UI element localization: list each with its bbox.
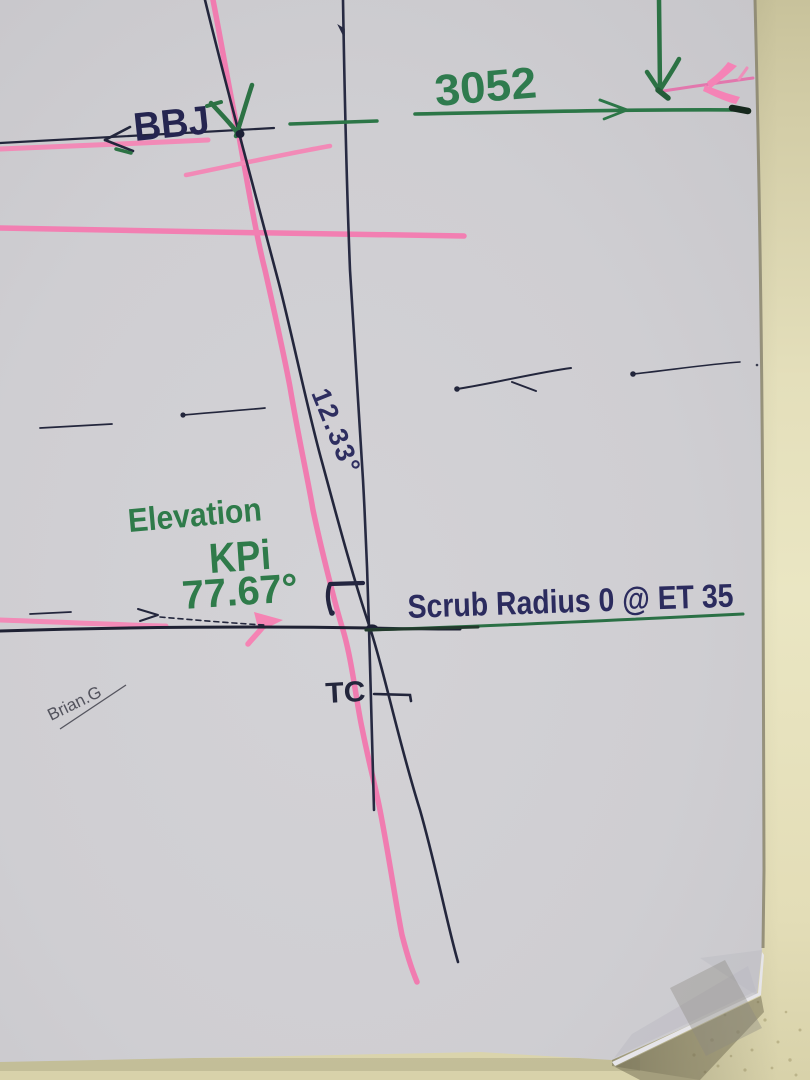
svg-text:3052: 3052 <box>433 58 539 116</box>
svg-text:BBJ: BBJ <box>131 98 211 150</box>
svg-text:77.67°: 77.67° <box>181 566 300 618</box>
svg-text:TC: TC <box>325 676 367 710</box>
